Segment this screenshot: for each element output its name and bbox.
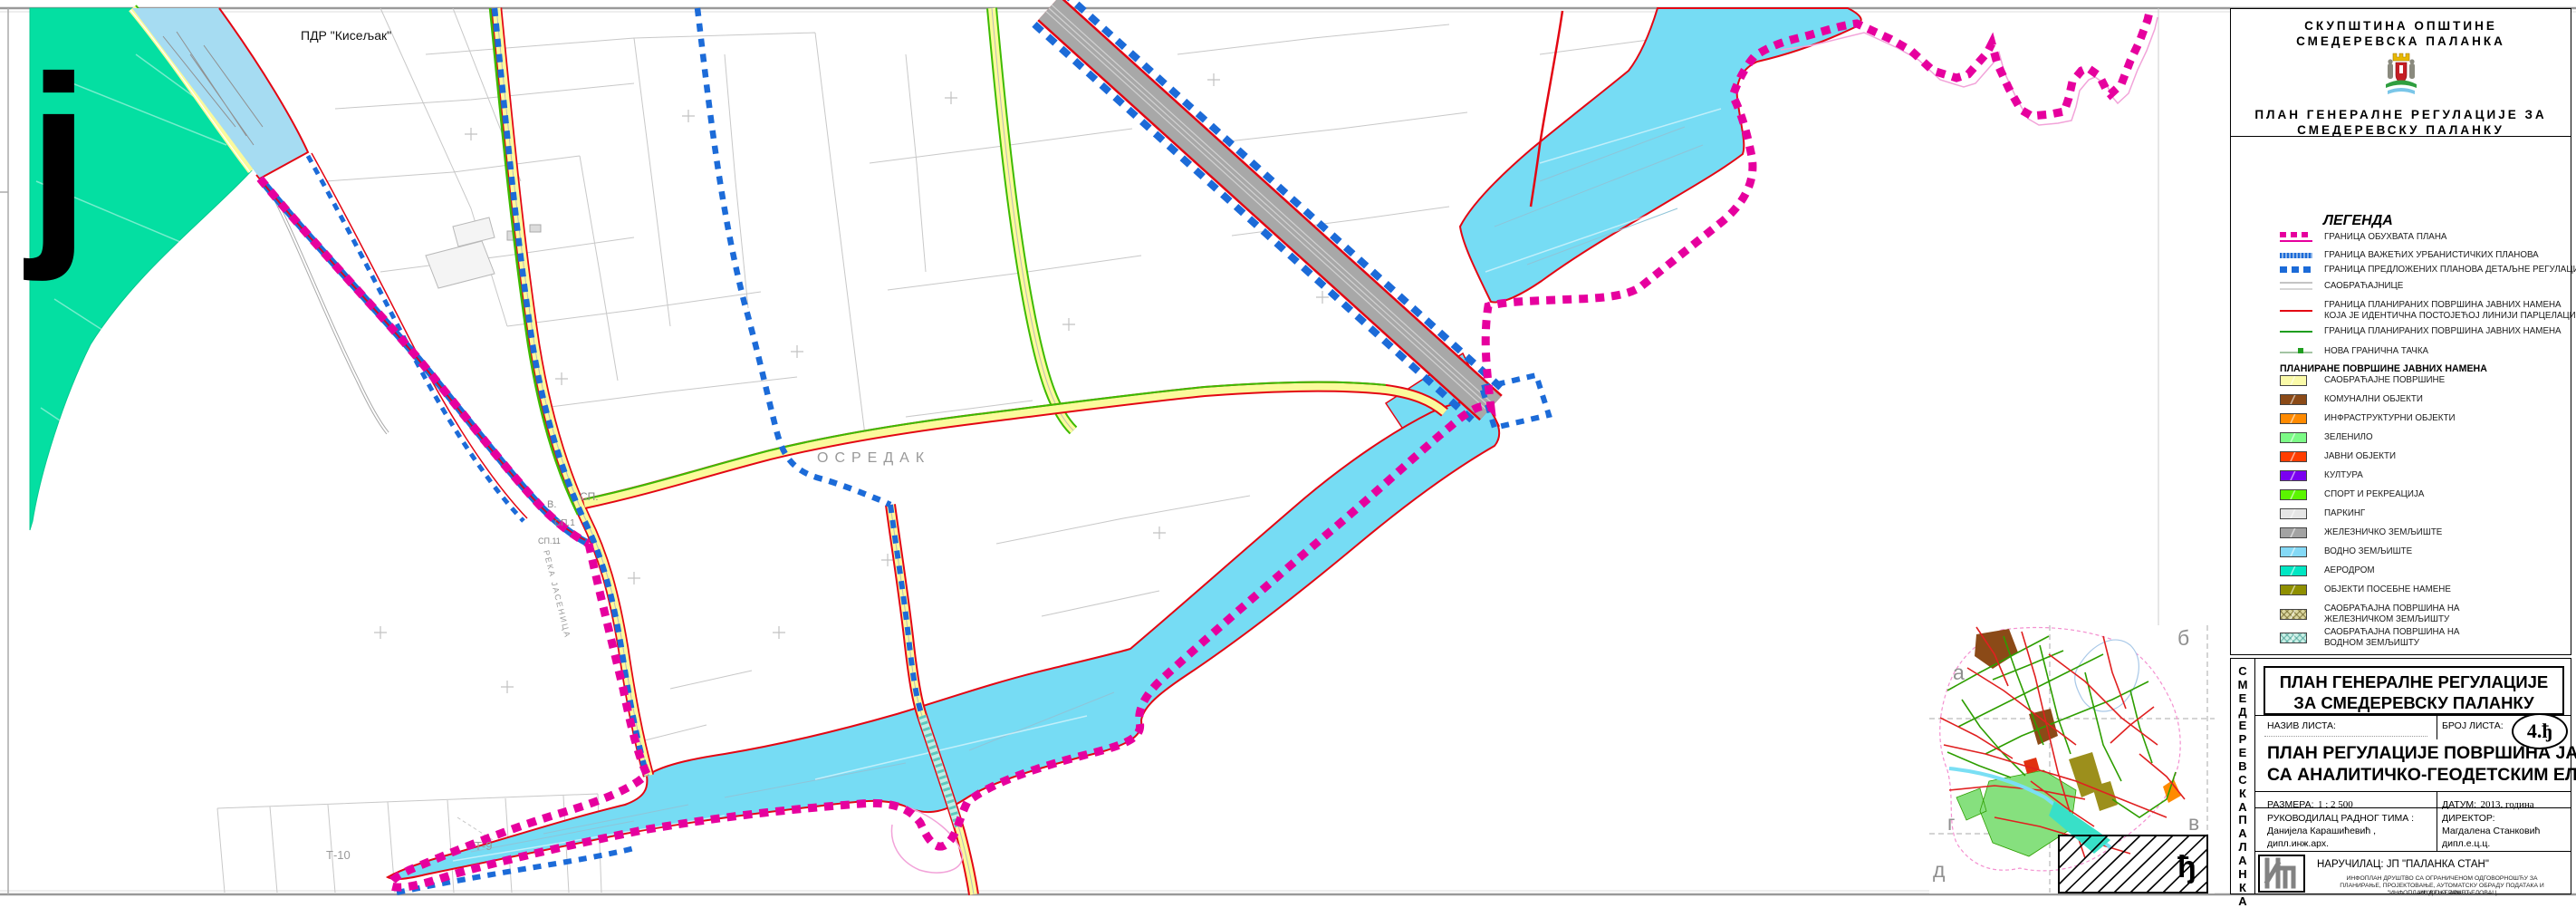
green-line-icon xyxy=(2280,325,2312,338)
reka-jasenica-label: РЕКА ЈАСЕНИЦА xyxy=(542,549,572,640)
legend-area-public-buildings: ЈАВНИ ОБЈЕКТИ xyxy=(2280,451,2396,462)
public-buildings-swatch xyxy=(2280,451,2307,462)
blue-hatched-line-icon xyxy=(2280,249,2312,262)
legend-area-water-land: ВОДНО ЗЕМЉИШТЕ xyxy=(2280,546,2412,557)
traffic-on-railway-swatch xyxy=(2280,609,2307,620)
v-label: В. xyxy=(547,499,556,510)
team-lead-name: Данијела Карашићевић , xyxy=(2267,826,2376,836)
water-lower xyxy=(388,401,1499,879)
director-label: ДИРЕКТОР: xyxy=(2442,813,2495,824)
org-name-line2: СМЕДЕРЕВСКА ПАЛАНКА xyxy=(2231,34,2571,49)
company-line1: ИНФОПЛАН ДРУШТВО СА ОГРАНИЧЕНОМ ОДГОВОРН… xyxy=(2317,875,2567,883)
special-purpose-swatch xyxy=(2280,584,2307,595)
airport-big-letter: ј xyxy=(24,29,90,282)
pdr-kiseljak-label: ПДР "Кисељак" xyxy=(301,28,391,43)
legend-area-greenery: ЗЕЛЕНИЛО xyxy=(2280,432,2373,443)
legend-title: ЛЕГЕНДА xyxy=(2323,213,2393,229)
sheet-number-badge: 4.ђ xyxy=(2512,713,2568,749)
svg-text:в: в xyxy=(2188,811,2199,835)
svg-text:а: а xyxy=(1953,661,1965,684)
airport-swatch xyxy=(2280,565,2307,576)
plan-name-line1: ПЛАН ГЕНЕРАЛНЕ РЕГУЛАЦИЈЕ ЗА xyxy=(2231,107,2571,122)
plan-title-box: ПЛАН ГЕНЕРАЛНЕ РЕГУЛАЦИЈЕ ЗА СМЕДЕРЕВСКУ… xyxy=(2264,666,2564,715)
vertical-text-palanka: ПАЛАНКА xyxy=(2231,813,2254,893)
legend-area-traffic-on-railway: САОБРАЋАЈНА ПОВРШИНА НА ЖЕЛЕЗНИЧКОМ ЗЕМЉ… xyxy=(2280,604,2459,624)
legend-area-sport: СПОРТ И РЕКРЕАЦИЈА xyxy=(2280,489,2424,500)
team-lead-title: дипл.инж.арх. xyxy=(2267,838,2329,849)
red-line-icon xyxy=(2280,304,2312,317)
railway-land-swatch xyxy=(2280,527,2307,538)
legend-item-proposed-plans-boundary: ГРАНИЦА ПРЕДЛОЖЕНИХ ПЛАНОВА ДЕТАЉНЕ РЕГУ… xyxy=(2280,264,2576,276)
legend-area-airport: АЕРОДРОМ xyxy=(2280,565,2375,576)
culture-swatch xyxy=(2280,470,2307,481)
sheet-number-label: БРОЈ ЛИСТА: xyxy=(2442,720,2504,731)
legend-item-plan-boundary: ГРАНИЦА ОБУХВАТА ПЛАНА xyxy=(2280,231,2446,244)
sheet-name-label: НАЗИВ ЛИСТА: xyxy=(2267,720,2336,731)
org-name-line1: СКУПШТИНА ОПШТИНЕ xyxy=(2231,18,2571,34)
legend-area-traffic: САОБРАЋАЈНЕ ПОВРШИНЕ xyxy=(2280,375,2445,386)
inset-sheet-letter: ђ xyxy=(2177,850,2196,884)
svg-text:г: г xyxy=(1947,811,1955,835)
road-connector-ew xyxy=(584,382,1445,504)
legend-areas-title: ПЛАНИРАНЕ ПОВРШИНЕ ЈАВНИХ НАМЕНА xyxy=(2280,363,2487,374)
sp11-label: СП.11 xyxy=(538,536,561,546)
team-director-row: РУКОВОДИЛАЦ РАДНОГ ТИМА : Данијела Караш… xyxy=(2255,807,2571,852)
legend-panel: ЛЕГЕНДА ГРАНИЦА ОБУХВАТА ПЛАНА ГРАНИЦА В… xyxy=(2230,136,2571,655)
railway-pdr-boundary-left xyxy=(1034,24,1476,424)
svg-text:д: д xyxy=(1933,858,1946,882)
parking-swatch xyxy=(2280,508,2307,519)
sheet-title: ПЛАН РЕГУЛАЦИЈЕ ПОВРШИНА ЈАВНЕ НАМЕНЕ СА… xyxy=(2267,742,2576,786)
t9-label: Т-9 xyxy=(475,839,493,853)
company-line3: "ИНФОПЛАН" Д.О.О. АРАНЂЕЛОВАЦ xyxy=(2317,890,2567,897)
plan-boundary-main xyxy=(391,8,2158,887)
legend-area-communal: КОМУНАЛНИ ОБЈЕКТИ xyxy=(2280,394,2423,405)
legend-item-streets: САОБРАЋАЈНИЦЕ xyxy=(2280,280,2403,293)
header-title-block: СКУПШТИНА ОПШТИНЕ СМЕДЕРЕВСКА ПАЛАНКА ПЛ… xyxy=(2230,8,2571,137)
scale-date-row: РАЗМЕРА: 1 : 2 500 ДАТУМ: 2013. година xyxy=(2255,791,2571,808)
title-block: СМЕДЕРЕВСКА ПАЛАНКА ПЛАН ГЕНЕРАЛНЕ РЕГУЛ… xyxy=(2230,658,2571,894)
farmstead-outline xyxy=(426,217,495,288)
legend-area-parking: ПАРКИНГ xyxy=(2280,508,2365,519)
magenta-dashed-line-icon xyxy=(2280,231,2312,244)
legend-item-public-boundary: ГРАНИЦА ПЛАНИРАНИХ ПОВРШИНА ЈАВНИХ НАМЕН… xyxy=(2280,325,2562,338)
blue-dashed-line-icon xyxy=(2280,264,2312,276)
country-road xyxy=(272,192,388,433)
director-name: Магдалена Станковић дипл.е.ц.ц. xyxy=(2442,826,2540,849)
legend-item-valid-plans-boundary: ГРАНИЦА ВАЖЕЋИХ УРБАНИСТИЧКИХ ПЛАНОВА xyxy=(2280,249,2539,262)
plan-map-canvas: ј xyxy=(0,0,2576,902)
t10-label: Т-10 xyxy=(326,848,351,862)
greenery-swatch xyxy=(2280,432,2307,443)
team-lead-label: РУКОВОДИЛАЦ РАДНОГ ТИМА : xyxy=(2267,813,2414,824)
inset-overview-map: ђ а б в г д xyxy=(1929,625,2215,894)
road-main-ns xyxy=(490,8,649,776)
plan-sheet: { "header": { "org_line1": "СКУПШТИНА ОП… xyxy=(0,0,2576,902)
infoplan-logo xyxy=(2258,855,2305,893)
osredak-label: ОСРЕДАК xyxy=(817,450,930,466)
client-name: НАРУЧИЛАЦ: ЈП "ПАЛАНКА СТАН" xyxy=(2317,859,2489,870)
legend-area-culture: КУЛТУРА xyxy=(2280,470,2363,481)
vertical-municipality-strip: СМЕДЕРЕВСКА ПАЛАНКА xyxy=(2231,659,2255,894)
legend-item-new-boundary-point: НОВА ГРАНИЧНА ТАЧКА xyxy=(2280,345,2428,358)
gray-double-line-icon xyxy=(2280,280,2312,293)
sp-label: СП. xyxy=(580,490,599,503)
legend-item-public-boundary-identical: ГРАНИЦА ПЛАНИРАНИХ ПОВРШИНА ЈАВНИХ НАМЕН… xyxy=(2280,300,2576,321)
communal-swatch xyxy=(2280,394,2307,405)
infrastructure-swatch xyxy=(2280,413,2307,424)
sport-swatch xyxy=(2280,489,2307,500)
legend-area-railway-land: ЖЕЛЕЗНИЧКО ЗЕМЉИШТЕ xyxy=(2280,527,2442,538)
svg-text:б: б xyxy=(2177,626,2189,650)
vertical-text-smederevska: СМЕДЕРЕВСКА xyxy=(2231,664,2254,798)
sp1-label: СП.1 xyxy=(554,518,575,528)
client-row: НАРУЧИЛАЦ: ЈП "ПАЛАНКА СТАН" ИНФОПЛАН ДР… xyxy=(2255,851,2571,896)
legend-area-infrastructure: ИНФРАСТРУКТУРНИ ОБЈЕКТИ xyxy=(2280,413,2456,424)
traffic-area-swatch xyxy=(2280,375,2307,386)
legend-area-traffic-on-water: САОБРАЋАЈНА ПОВРШИНА НА ВОДНОМ ЗЕМЉИШТУ xyxy=(2280,627,2459,648)
legend-area-special-purpose: ОБЈЕКТИ ПОСЕБНЕ НАМЕНЕ xyxy=(2280,584,2451,595)
traffic-on-water-swatch xyxy=(2280,633,2307,643)
water-land-swatch xyxy=(2280,546,2307,557)
boundary-point-icon xyxy=(2280,345,2312,358)
road-second-ns xyxy=(992,8,1073,430)
coat-of-arms-icon xyxy=(2374,52,2428,101)
